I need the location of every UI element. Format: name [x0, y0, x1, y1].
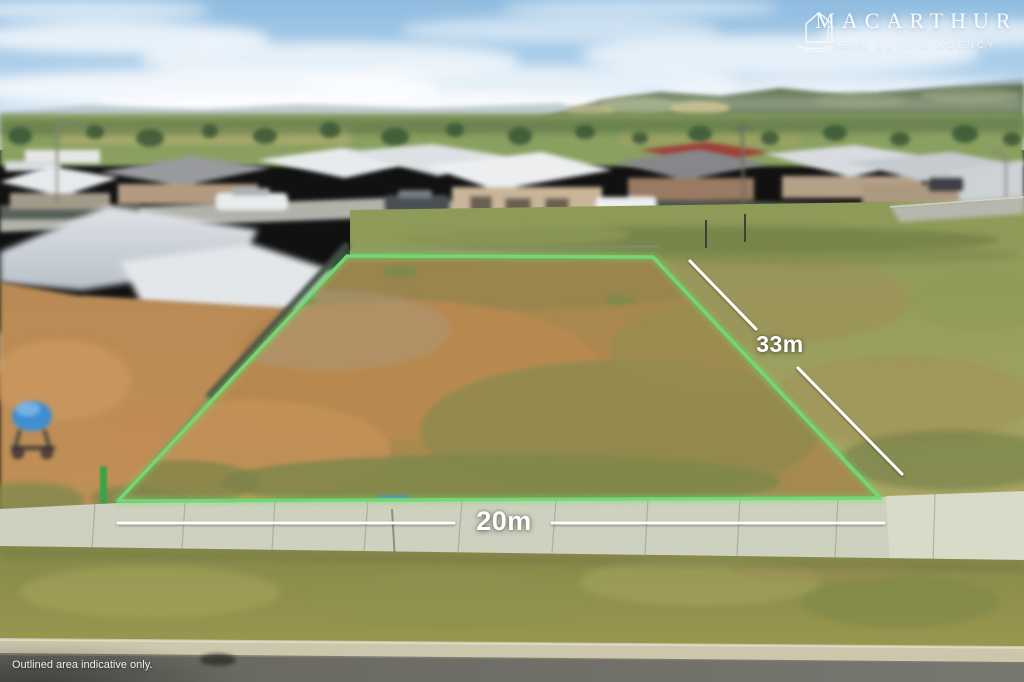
scene [0, 0, 1024, 682]
frontage-measurement-label: 20m [456, 507, 552, 537]
green-marker-post [100, 466, 107, 506]
aerial-photo: MACARTHUR REAL ESTATE AGENCY 33m 20m Out… [0, 0, 1024, 682]
agency-logo: MACARTHUR REAL ESTATE AGENCY [791, 8, 1024, 50]
agency-tagline: REAL ESTATE AGENCY [791, 40, 1024, 50]
disclaimer-text: Outlined area indicative only. [12, 659, 152, 671]
depth-measurement-label: 33m [743, 332, 817, 357]
